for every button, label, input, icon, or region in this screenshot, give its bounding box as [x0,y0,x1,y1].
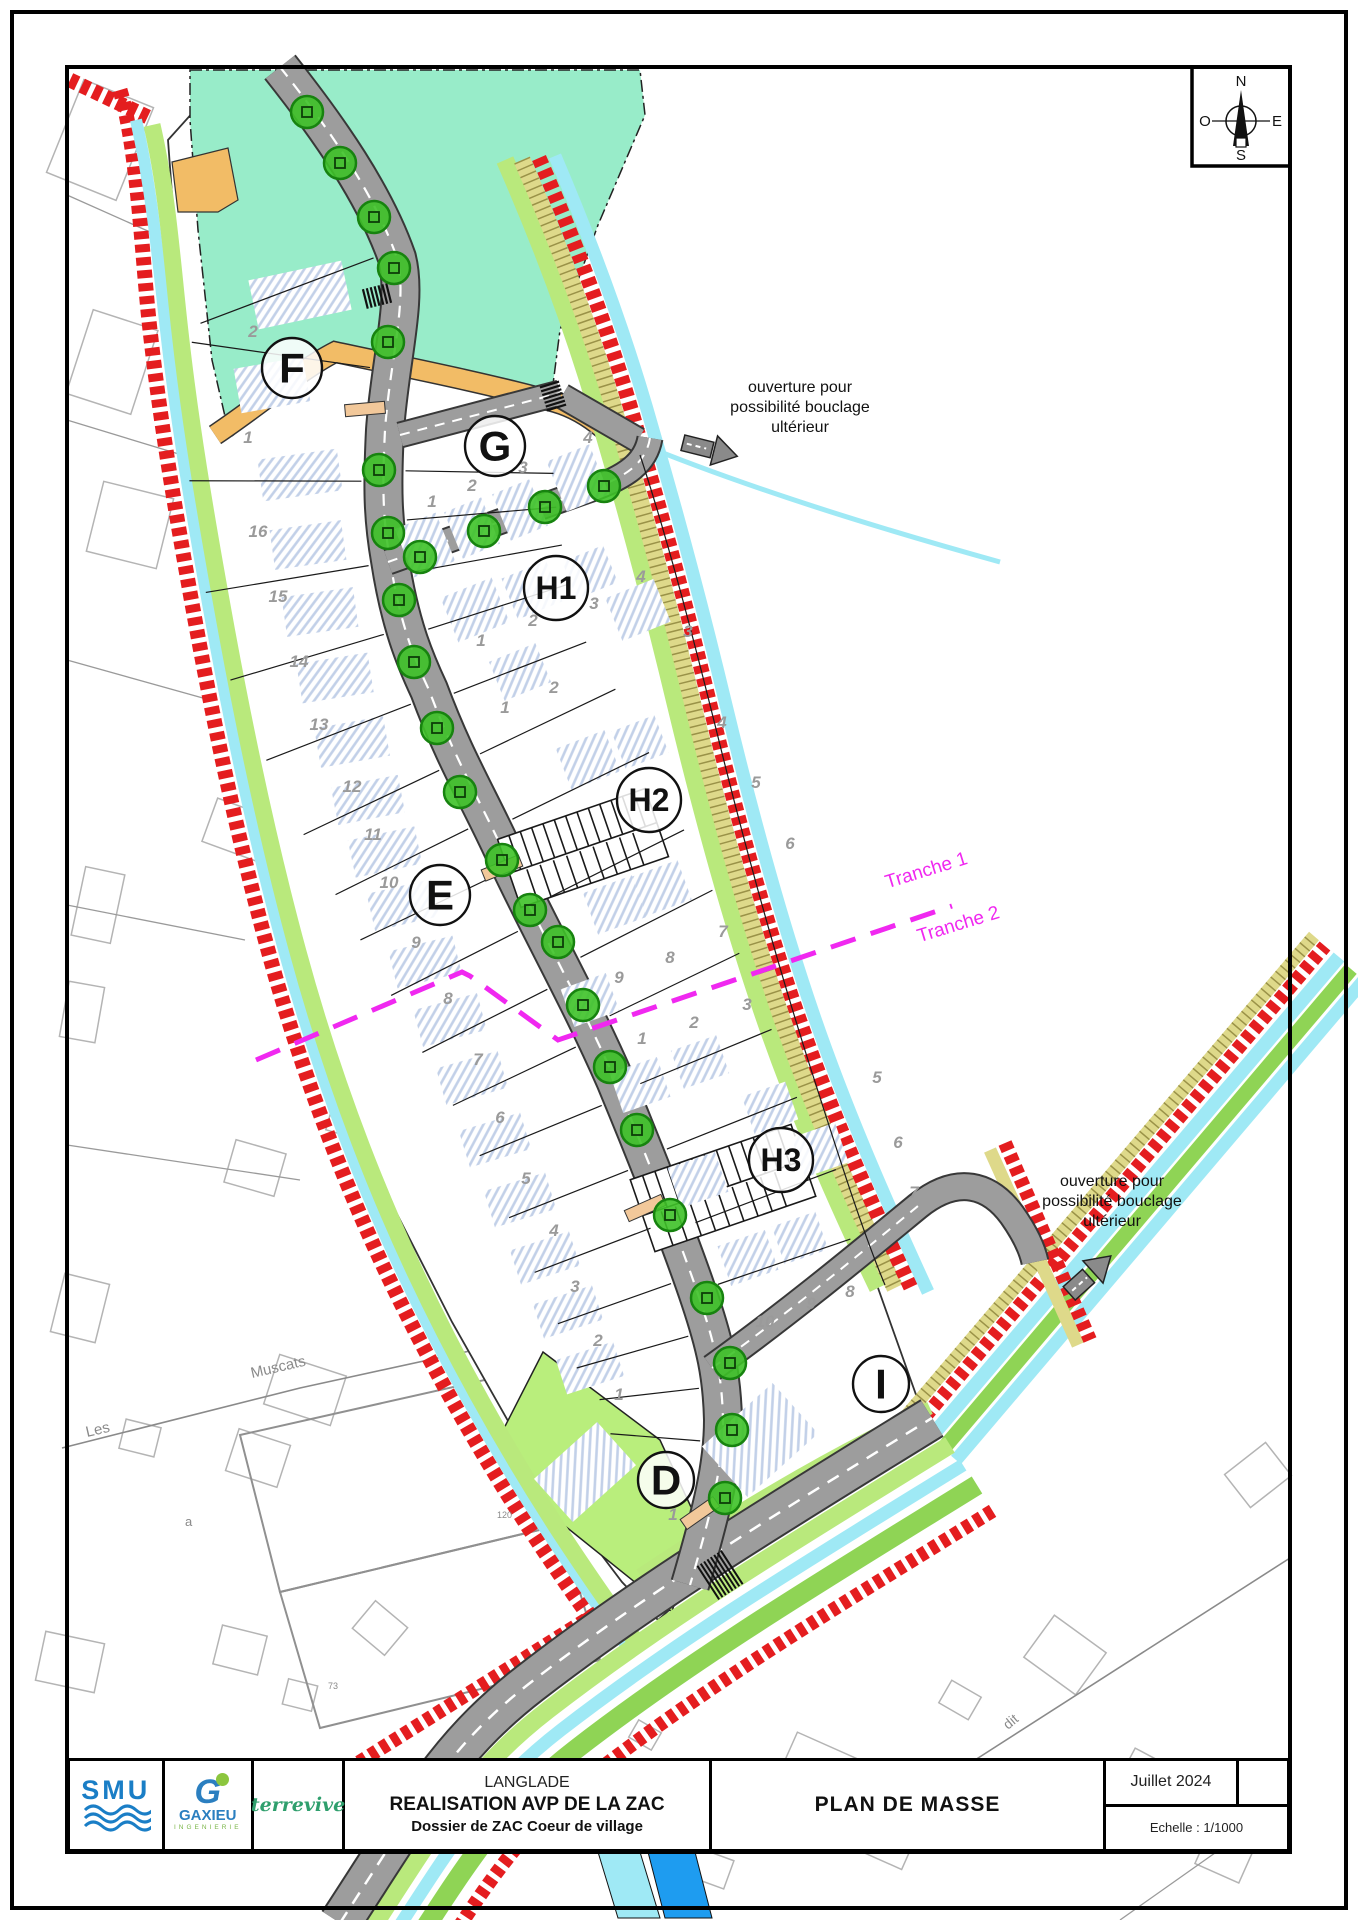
annotation-line: ultérieur [1083,1213,1141,1230]
parcel-number: 3 [683,622,693,641]
parcel-number: 9 [411,933,421,952]
context-label-120: 120 [497,1510,512,1520]
tree-icon [567,989,599,1021]
parcel-number: 12 [343,777,362,796]
gaxieu-g-icon: G [195,1777,221,1808]
terravia-logo: terrevive [254,1761,345,1849]
parcel-number: 9 [614,968,624,987]
tree-icon [378,252,410,284]
street-label-les: Les [84,1419,111,1441]
title-block: SMU G GAXIEU INGENIERIE terrevive LANGLA… [67,1758,1290,1852]
existing-building [352,1601,407,1656]
zone-label-H3: H3 [749,1128,813,1192]
tree-icon [529,491,561,523]
annotation-line: possibilité bouclage [730,399,870,416]
empty-cell [1239,1761,1287,1804]
zone-label-F: F [262,338,322,398]
tree-icon [421,712,453,744]
parcel-number: 2 [688,1013,699,1032]
zone-letter: E [426,872,454,919]
existing-building [1225,1442,1292,1507]
tree-icon [542,926,574,958]
parcel-number: 5 [751,773,761,792]
parcel-number: 15 [269,587,288,606]
zone-letter: H3 [761,1142,802,1178]
date-value: Juillet 2024 [1106,1761,1239,1804]
tranche-1-label: Tranche 1 [883,848,970,893]
existing-building [50,1273,109,1342]
tree-icon [372,517,404,549]
commune-name: LANGLADE [484,1773,569,1793]
smu-logo: SMU [70,1761,165,1849]
existing-building [213,1625,267,1675]
zone-letter: D [651,1457,681,1504]
existing-building [226,1429,291,1488]
tree-icon [372,326,404,358]
parcel-number: 1 [637,1029,646,1048]
context-label-73: 73 [328,1681,338,1691]
document-title-cell: PLAN DE MASSE [712,1761,1106,1849]
parcel-number: 7 [473,1050,484,1069]
terravia-logo-text: terrevive [251,1794,345,1816]
road-dit-line [975,1558,1290,1760]
existing-building [224,1140,286,1197]
tree-icon [486,844,518,876]
parcel-number: 13 [310,715,329,734]
parcel-number: 2 [466,476,477,495]
parcel-number: 8 [443,989,453,1008]
parcel-number: 6 [893,1133,903,1152]
tree-icon [468,515,500,547]
parcel-number: 3 [570,1277,580,1296]
tree-icon [444,776,476,808]
tree-icon [709,1482,741,1514]
parcel-number: 1 [476,631,485,650]
document-title: PLAN DE MASSE [815,1793,1001,1817]
parcel-number: 1 [427,492,436,511]
parcel-number: 2 [548,678,559,697]
project-title: REALISATION AVP DE LA ZAC [389,1793,664,1817]
parcel-number: 8 [665,948,675,967]
parcel-number: 5 [872,1068,882,1087]
tree-icon [714,1347,746,1379]
annotation-north: ouverture pour possibilité bouclage ulté… [730,379,870,436]
existing-building [939,1680,981,1720]
tree-icon [588,470,620,502]
zone-label-D: D [638,1452,694,1508]
dossier-subtitle: Dossier de ZAC Coeur de village [411,1817,643,1837]
tree-icon [514,894,546,926]
zone-letter: G [479,423,512,470]
tree-icon [363,454,395,486]
annotation-line: ultérieur [771,419,829,436]
parcel-number: 9 [806,1294,816,1313]
parcel-number: 4 [635,567,646,586]
parcel-number: 10 [756,1312,775,1331]
parcel-number: 5 [521,1169,531,1188]
zone-letter: H1 [536,570,577,606]
tree-icon [324,147,356,179]
tree-icon [291,96,323,128]
annotation-line: possibilité bouclage [1042,1193,1182,1210]
zone-letter: H2 [629,782,670,818]
parcel-number: 4 [548,1221,559,1240]
parcel-number: 6 [785,834,795,853]
compass-n: N [1236,73,1247,90]
parcel-number: 4 [716,713,727,732]
scale-value: Echelle : 1/1000 [1106,1807,1287,1850]
context-label-a: a [185,1514,193,1529]
smu-logo-text: SMU [81,1777,150,1804]
zone-label-I: I [853,1356,909,1412]
zone-letter: F [279,345,305,392]
tree-icon [398,646,430,678]
parcel-number: 1 [614,1385,623,1404]
project-title-cell: LANGLADE REALISATION AVP DE LA ZAC Dossi… [345,1761,712,1849]
zone-label-H2: H2 [617,768,681,832]
compass-o: O [1199,113,1211,130]
tree-icon [654,1199,686,1231]
parcel-line [67,660,210,700]
zone-label-G: G [465,416,525,476]
tree-icon [621,1114,653,1146]
tranche-2-label: Tranche 2 [915,902,1002,947]
plan-page: Tranche 1 Tranche 2 21161514131211109876… [0,0,1358,1920]
street-label-dit: dit [1000,1710,1022,1732]
existing-building [35,1631,104,1692]
zone-label-H1: H1 [524,556,588,620]
parcel-number: 2 [247,322,258,341]
smu-waves-icon [81,1804,151,1834]
gaxieu-dot-icon [216,1773,229,1786]
tree-icon [691,1282,723,1314]
tree-icon [383,584,415,616]
site-plan-drawing: Tranche 1 Tranche 2 21161514131211109876… [0,0,1358,1920]
parcel-number: 3 [742,995,752,1014]
parcel-number: 1 [500,698,509,717]
compass-s: S [1236,147,1246,164]
parcel-number: 3 [589,594,599,613]
gaxieu-logo-subtext: INGENIERIE [174,1823,242,1832]
tree-icon [358,201,390,233]
existing-building [282,1679,317,1711]
parcel-number: 8 [845,1282,855,1301]
parcel-number: 16 [249,522,268,541]
parcel-number: 7 [718,922,729,941]
compass-e: E [1272,113,1282,130]
zone-label-E: E [410,865,470,925]
tree-icon [404,541,436,573]
annotation-line: ouverture pour [748,379,853,396]
parcel-number: 2 [592,1331,603,1350]
annotation-line: ouverture pour [1060,1173,1165,1190]
parcel-number: 1 [243,428,252,447]
tree-icon [716,1414,748,1446]
zone-letter: I [875,1361,887,1408]
date-row: Juillet 2024 [1106,1761,1287,1807]
tree-icon [594,1051,626,1083]
parcel-number: 6 [495,1108,505,1127]
existing-building [86,481,173,568]
parcel-number: 14 [290,652,309,671]
parcel-number: 11 [364,825,382,844]
parcel-number: 7 [909,1183,920,1202]
existing-building [71,867,125,944]
parcel-number: 4 [582,428,593,447]
gaxieu-logo: G GAXIEU INGENIERIE [165,1761,255,1849]
date-scale-cell: Juillet 2024 Echelle : 1/1000 [1106,1761,1287,1849]
compass-rose: N S O E [1192,67,1290,166]
parcel-number: 10 [380,873,399,892]
